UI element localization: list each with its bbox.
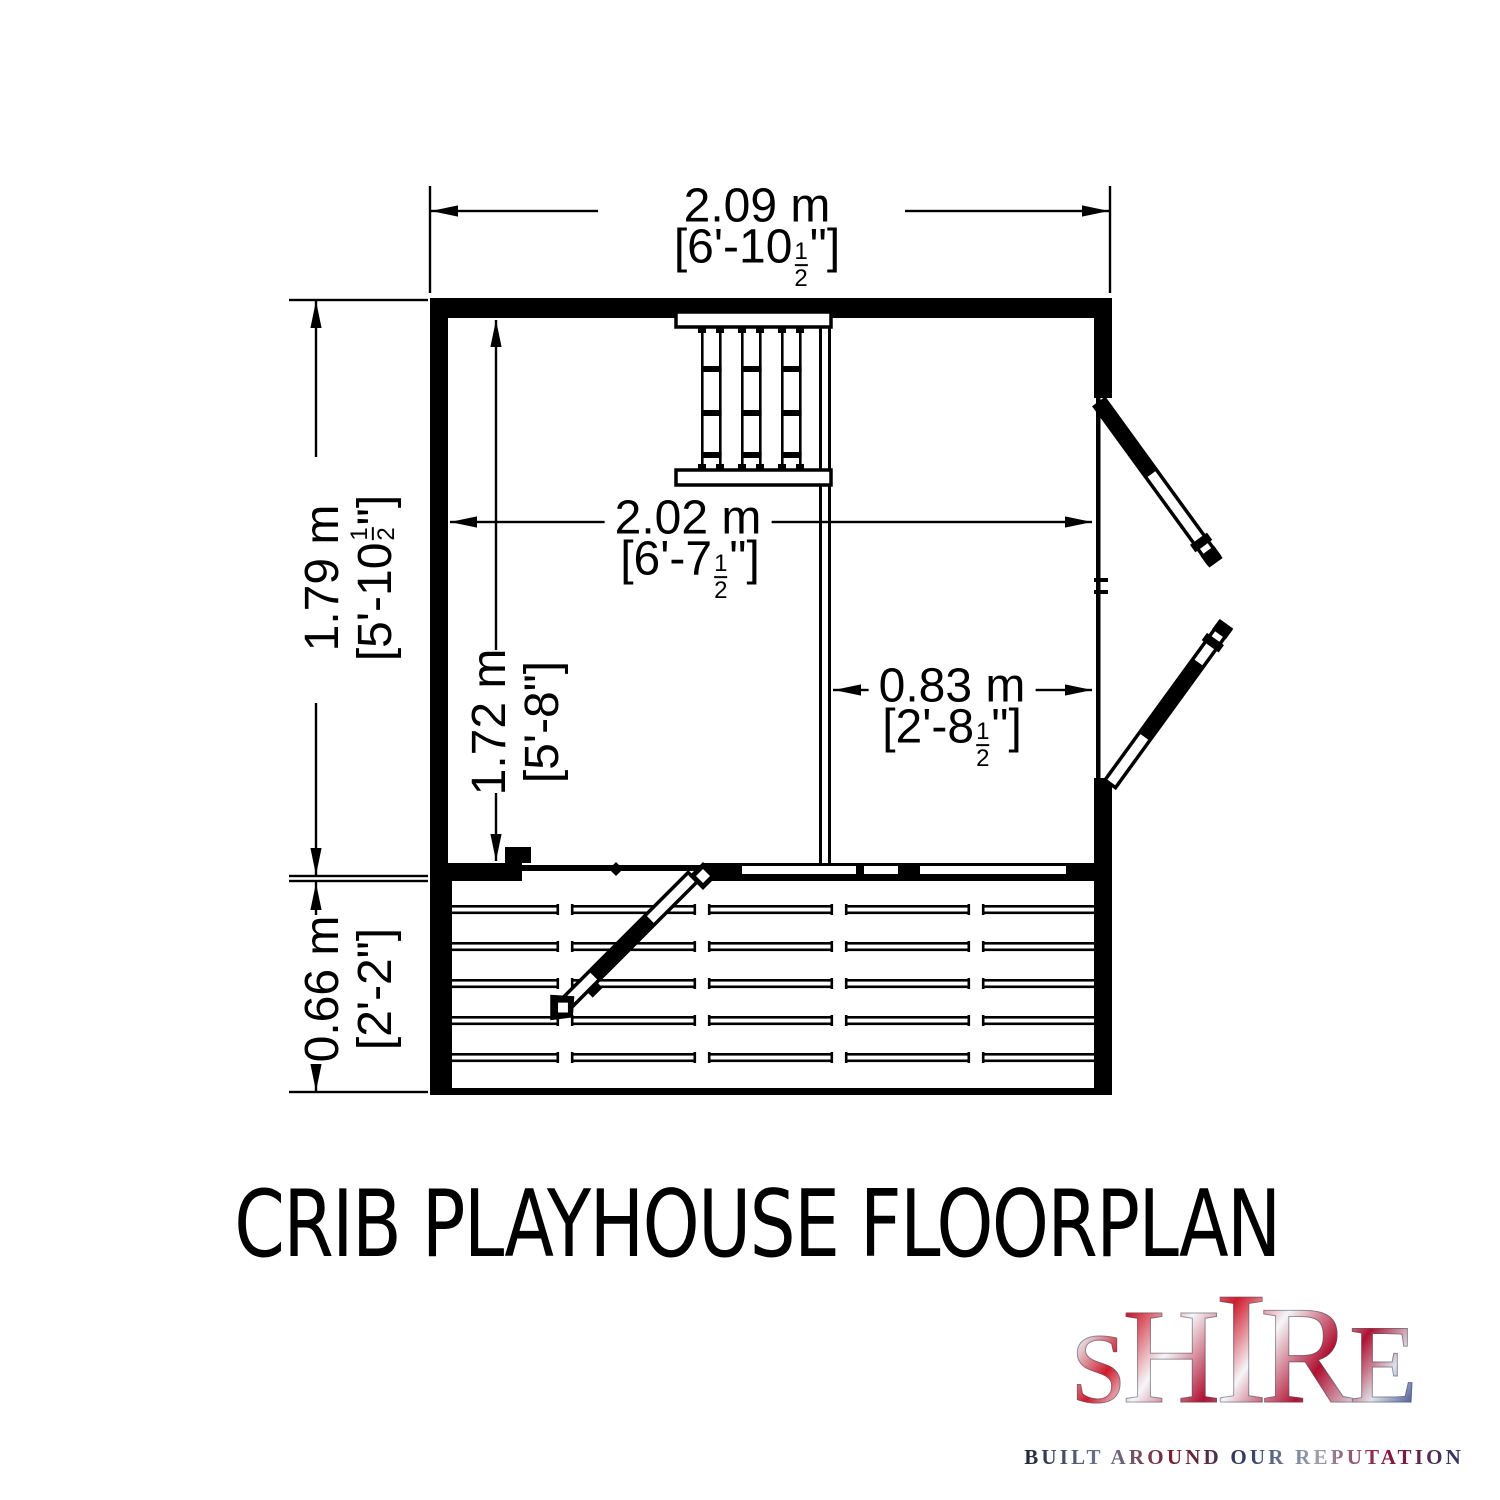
- shire-logo-word: S H I R E: [1071, 1256, 1418, 1441]
- dim-overall-width-imperial: [6'-1012"]: [674, 222, 840, 295]
- dim-deck-depth: 0.66 m [2'-2"]: [297, 916, 403, 1063]
- deck-bottom-edge: [430, 1088, 1112, 1095]
- deck-right-edge: [1094, 881, 1112, 1095]
- bottom-wall: [430, 847, 1112, 881]
- floorplan-page: 2.09 m [6'-1012"] 1.79 m [5'-1012"] 1.72…: [0, 0, 1500, 1500]
- threshold-dot: [609, 862, 623, 876]
- right-door-opening: [1094, 398, 1108, 778]
- dim-internal-depth: 1.72 m [5'-8"]: [464, 649, 570, 796]
- logo-letter: E: [1349, 1301, 1417, 1430]
- logo-letter: S: [1071, 1311, 1127, 1426]
- plank-joints: [557, 903, 985, 1064]
- shire-logo: S H I R E BUILT AROUND OUR REPUTATION: [1024, 1256, 1464, 1470]
- logo-letter: H: [1122, 1279, 1220, 1435]
- right-door-leaf-top: [1091, 397, 1223, 568]
- door-stop-block: [505, 847, 531, 863]
- dim-overall-depth: 1.79 m [5'-1012"]: [297, 495, 403, 661]
- outer-wall-left: [430, 318, 448, 881]
- partition-wall: [819, 318, 831, 863]
- outer-wall-right-upper: [1094, 318, 1112, 398]
- door-jamb-line: [1096, 398, 1101, 778]
- right-door-leaf-bottom: [1102, 618, 1235, 790]
- ladder: [676, 312, 831, 485]
- dim-internal-width-imperial: [6'-712"]: [620, 534, 760, 607]
- deck-planks: [452, 903, 1094, 1064]
- deck-left-edge: [430, 881, 452, 1095]
- dim-room-width-imperial: [2'-812"]: [882, 702, 1022, 775]
- shire-logo-tagline: BUILT AROUND OUR REPUTATION: [1024, 1445, 1464, 1470]
- logo-letter: R: [1260, 1275, 1353, 1436]
